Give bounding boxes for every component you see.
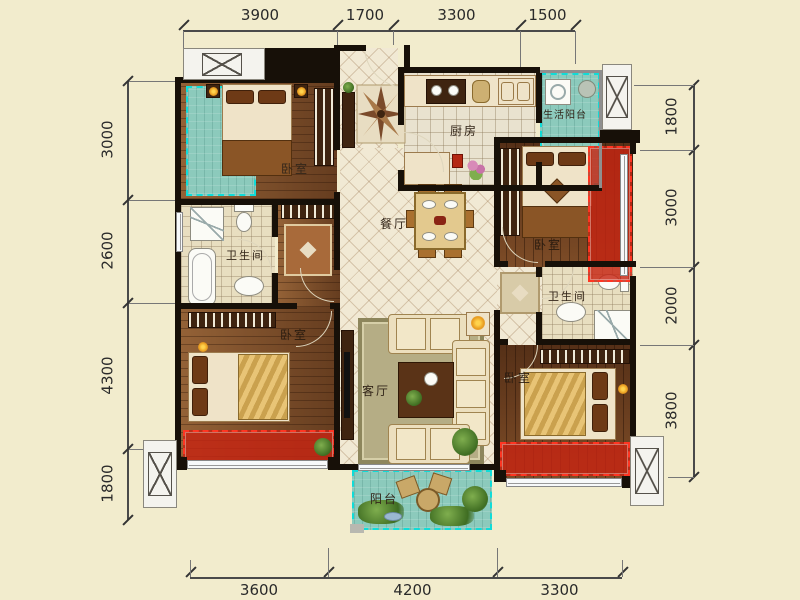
shower-glass-icon <box>190 207 224 241</box>
wall <box>175 77 181 465</box>
wall <box>175 199 340 205</box>
sofa-cushion <box>396 428 426 460</box>
window <box>187 460 328 469</box>
extension-line <box>129 303 175 304</box>
wall <box>334 303 340 470</box>
lamp-icon <box>198 342 208 352</box>
wall <box>258 48 340 78</box>
lamp-icon <box>297 87 306 96</box>
dim-left-0: 3000 <box>101 110 116 170</box>
wall <box>340 464 358 470</box>
wall <box>330 303 340 309</box>
wall <box>536 267 542 277</box>
dim-right-2: 2000 <box>665 276 680 336</box>
tick <box>617 566 628 577</box>
coffee-table <box>398 362 454 418</box>
cutting-board <box>472 80 490 103</box>
window <box>176 212 183 252</box>
wall <box>494 137 500 267</box>
lamp-icon <box>618 384 628 394</box>
extension-line <box>622 560 623 577</box>
plate-icon <box>424 372 438 386</box>
wall <box>536 339 636 345</box>
plant-icon <box>462 486 488 512</box>
extension-line <box>328 548 329 577</box>
extension-line <box>393 31 394 45</box>
extension-line <box>129 200 175 201</box>
ac-x-icon <box>606 76 628 118</box>
dim-bottom-1: 4200 <box>328 583 497 598</box>
tick <box>492 566 503 577</box>
plant-icon <box>406 390 422 406</box>
extension-line <box>337 31 338 45</box>
plate-icon <box>444 232 458 241</box>
dim-top-2: 3300 <box>393 8 520 23</box>
room-label-bedroom-bottom-left: 卧室 <box>280 329 308 341</box>
plate-icon <box>422 200 436 209</box>
extension-line <box>129 81 175 82</box>
dim-top-1: 1700 <box>337 8 393 23</box>
dim-left-1: 2600 <box>101 221 116 281</box>
flowers-icon <box>465 156 487 180</box>
pillow <box>558 152 586 166</box>
toilet <box>236 212 252 232</box>
wall <box>334 45 340 150</box>
wall <box>404 67 540 73</box>
dimension-line-bottom <box>190 577 622 579</box>
extension-line <box>640 267 694 268</box>
wall <box>272 273 278 305</box>
wardrobe <box>500 148 520 236</box>
dim-left-3: 1800 <box>101 454 116 514</box>
washer-drum-icon <box>550 84 566 100</box>
wall <box>328 457 340 470</box>
dim-top-3: 1500 <box>520 8 575 23</box>
red-overlay-bottom-right <box>500 442 630 476</box>
dim-left-2: 4300 <box>101 346 116 406</box>
extension-line <box>183 31 184 48</box>
wall <box>175 303 297 309</box>
wall <box>470 464 497 470</box>
wall <box>494 137 636 143</box>
pillow <box>192 356 208 384</box>
room-label-bedroom-bottom-right: 卧室 <box>504 372 532 384</box>
hallway-rug <box>500 272 540 314</box>
pillow <box>226 90 254 104</box>
wardrobe <box>540 349 630 364</box>
wall <box>272 205 278 237</box>
dim-right-0: 1800 <box>665 87 680 147</box>
bathtub-inner <box>192 253 212 301</box>
room-label-bath-right: 卫生间 <box>548 291 587 302</box>
wall <box>340 45 366 51</box>
extension-line <box>497 548 498 577</box>
shoe-cabinet <box>342 92 355 148</box>
room-label-bedroom-top-left: 卧室 <box>281 163 309 175</box>
burner-icon <box>448 85 459 96</box>
red-overlay-bottom-left <box>183 430 335 463</box>
sofa-cushion <box>456 348 486 376</box>
plant-icon <box>314 438 332 456</box>
extension-line <box>668 477 694 478</box>
blanket <box>524 372 586 436</box>
wall <box>398 67 404 125</box>
plate-icon <box>422 232 436 241</box>
basin-icon <box>578 80 596 98</box>
ac-x-icon <box>202 53 242 76</box>
blanket <box>238 354 288 420</box>
extension-line <box>575 31 576 64</box>
window <box>506 478 622 487</box>
sink-basin <box>517 82 530 101</box>
wall <box>536 73 542 123</box>
balcony-rail <box>540 70 602 73</box>
window <box>620 154 628 276</box>
wall <box>536 162 542 191</box>
lamp-icon <box>471 316 485 330</box>
wall <box>500 261 508 267</box>
tv-icon <box>344 352 350 418</box>
sofa-cushion <box>396 318 426 350</box>
sink-basin <box>501 82 514 101</box>
ac-x-icon <box>635 448 659 494</box>
extension-line <box>190 560 191 577</box>
room-label-living: 客厅 <box>362 385 390 397</box>
room-label-service-balcony: 生活阳台 <box>543 111 587 121</box>
dim-top-0: 3900 <box>183 8 337 23</box>
room-label-kitchen: 厨房 <box>450 125 478 137</box>
balcony-step <box>350 524 364 533</box>
wall <box>398 185 602 191</box>
lamp-icon <box>209 87 218 96</box>
ac-x-icon <box>148 452 172 496</box>
pillow <box>192 388 208 416</box>
centerpiece-icon <box>434 216 446 225</box>
dim-bottom-2: 3300 <box>497 583 622 598</box>
plant-icon <box>343 82 354 93</box>
dim-right-1: 3000 <box>665 178 680 238</box>
plate-icon <box>444 200 458 209</box>
kettle-icon <box>452 154 463 168</box>
pillow <box>592 372 608 400</box>
sink <box>556 302 586 322</box>
wall <box>494 310 500 470</box>
dim-right-3: 3800 <box>665 381 680 441</box>
wall <box>494 470 506 482</box>
extension-line <box>640 345 694 346</box>
tick <box>323 566 334 577</box>
sink <box>234 276 264 296</box>
room-label-bath-left: 卫生间 <box>226 250 265 261</box>
plant-icon <box>452 428 478 456</box>
shower-glass-icon <box>594 310 631 340</box>
dimension-line-right <box>693 85 695 477</box>
tick <box>185 566 196 577</box>
balcony-sliding-door <box>358 464 470 471</box>
extension-line <box>129 449 143 450</box>
closet-rack <box>281 204 335 219</box>
pillow <box>592 404 608 432</box>
room-label-bedroom-top-right: 卧室 <box>534 239 562 251</box>
burner-icon <box>431 85 442 96</box>
room-label-dining: 餐厅 <box>380 218 408 230</box>
dim-bottom-0: 3600 <box>190 583 328 598</box>
pond-icon <box>384 512 402 521</box>
sofa-cushion <box>456 380 486 408</box>
wall <box>630 137 636 154</box>
extension-line <box>640 150 694 151</box>
wall <box>500 339 508 345</box>
room-label-balcony: 阳台 <box>370 493 398 505</box>
wardrobe <box>188 312 276 328</box>
wardrobe <box>314 88 334 166</box>
pillow <box>258 90 286 104</box>
floor-plan: 卧室 卧室 卧室 卧室 厨房 生活阳台 餐厅 卫生间 卫生间 客厅 阳台 390… <box>0 0 800 600</box>
extension-line <box>520 31 521 67</box>
wall <box>545 261 636 267</box>
